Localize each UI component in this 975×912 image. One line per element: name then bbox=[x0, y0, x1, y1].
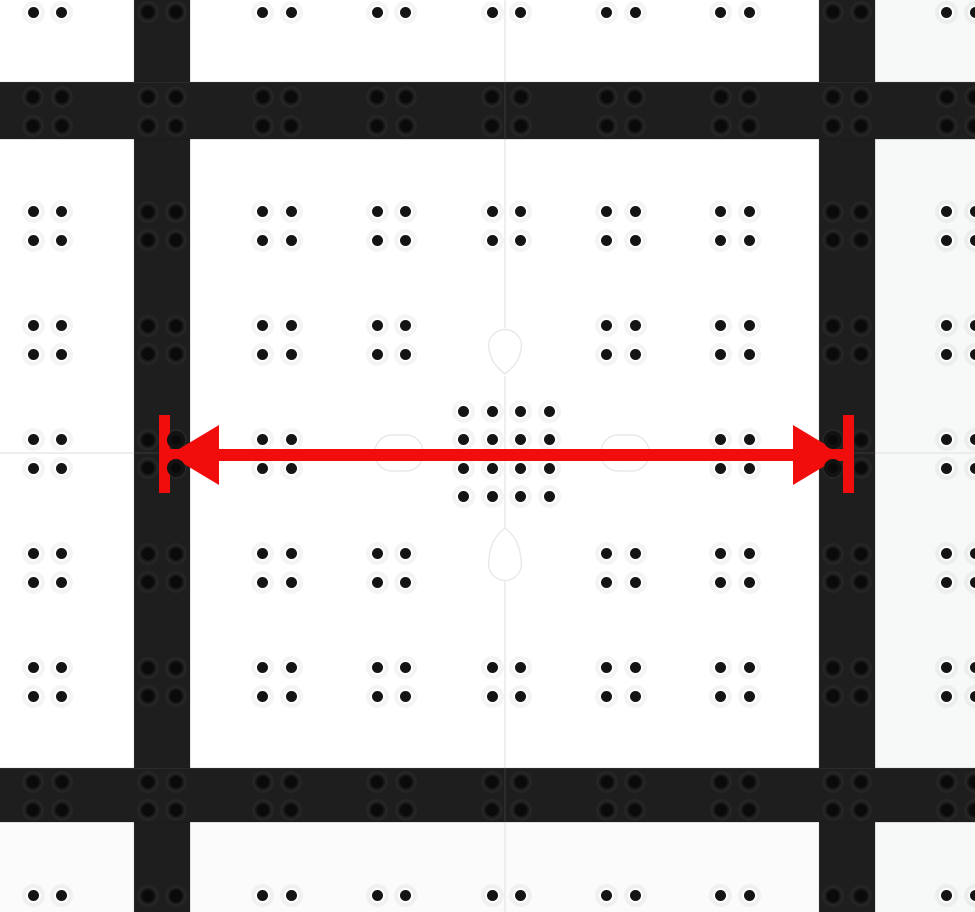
hole-dot bbox=[56, 463, 67, 474]
hole-dot bbox=[372, 320, 383, 331]
band-hole-dot bbox=[170, 206, 182, 218]
band-hole-dot bbox=[601, 120, 613, 132]
band-hole-dot bbox=[941, 91, 953, 103]
hole-dot bbox=[372, 235, 383, 246]
band-hole-dot bbox=[371, 776, 383, 788]
band-hole-dot bbox=[170, 548, 182, 560]
band-hole-dot bbox=[142, 234, 154, 246]
hole-dot bbox=[630, 577, 641, 588]
band-hole-dot bbox=[715, 91, 727, 103]
seam-over-band bbox=[504, 768, 506, 822]
band-hole-dot bbox=[400, 776, 412, 788]
band-hole-dot bbox=[142, 6, 154, 18]
band-hole-dot bbox=[170, 662, 182, 674]
band-hole-dot bbox=[142, 348, 154, 360]
hole-dot bbox=[487, 206, 498, 217]
hole-dot bbox=[941, 691, 952, 702]
hole-dot bbox=[744, 662, 755, 673]
measure-tick-left bbox=[159, 415, 170, 493]
hole-dot bbox=[372, 662, 383, 673]
seam-over-band bbox=[504, 82, 506, 139]
hole-dot bbox=[487, 434, 498, 445]
hole-dot bbox=[372, 890, 383, 901]
hole-dot bbox=[257, 463, 268, 474]
band-hole-dot bbox=[142, 662, 154, 674]
band-hole-dot bbox=[827, 348, 839, 360]
hole-dot bbox=[28, 662, 39, 673]
hole-dot bbox=[630, 691, 641, 702]
hole-dot bbox=[458, 463, 469, 474]
hole-dot bbox=[286, 548, 297, 559]
band-hole-dot bbox=[170, 320, 182, 332]
hole-dot bbox=[970, 7, 975, 18]
hole-dot bbox=[744, 548, 755, 559]
band-hole-dot bbox=[743, 776, 755, 788]
band-hole-dot bbox=[941, 776, 953, 788]
hole-dot bbox=[56, 691, 67, 702]
hole-dot bbox=[372, 691, 383, 702]
band-hole-dot bbox=[827, 576, 839, 588]
band-hole-dot bbox=[285, 776, 297, 788]
hole-dot bbox=[544, 434, 555, 445]
hole-dot bbox=[28, 7, 39, 18]
hole-dot bbox=[286, 206, 297, 217]
hole-dot bbox=[630, 662, 641, 673]
band-hole-dot bbox=[715, 120, 727, 132]
band-hole-dot bbox=[170, 890, 182, 902]
band-hole-dot bbox=[486, 120, 498, 132]
hole-dot bbox=[372, 7, 383, 18]
band-hole-dot bbox=[941, 120, 953, 132]
hole-dot bbox=[601, 7, 612, 18]
band-hole-dot bbox=[855, 320, 867, 332]
hole-dot bbox=[715, 349, 726, 360]
band-hole-dot bbox=[855, 548, 867, 560]
hole-dot bbox=[601, 691, 612, 702]
hole-dot bbox=[56, 349, 67, 360]
hole-dot bbox=[257, 349, 268, 360]
band-hole-dot bbox=[56, 91, 68, 103]
hole-dot bbox=[400, 691, 411, 702]
measure-arrow-shaft bbox=[169, 449, 843, 461]
hole-dot bbox=[630, 235, 641, 246]
band-hole-dot bbox=[170, 776, 182, 788]
hole-dot bbox=[715, 577, 726, 588]
band-hole-dot bbox=[56, 804, 68, 816]
hole-dot bbox=[941, 349, 952, 360]
hole-dot bbox=[744, 349, 755, 360]
hole-dot bbox=[941, 463, 952, 474]
hole-dot bbox=[601, 577, 612, 588]
hole-dot bbox=[715, 691, 726, 702]
band-hole-dot bbox=[827, 320, 839, 332]
hole-dot bbox=[257, 235, 268, 246]
band-hole-dot bbox=[142, 320, 154, 332]
hole-dot bbox=[286, 577, 297, 588]
hole-dot bbox=[630, 548, 641, 559]
band-hole-dot bbox=[855, 662, 867, 674]
hole-dot bbox=[715, 463, 726, 474]
band-hole-dot bbox=[715, 804, 727, 816]
hole-dot bbox=[286, 7, 297, 18]
hole-dot bbox=[630, 206, 641, 217]
hole-dot bbox=[372, 577, 383, 588]
hole-dot bbox=[715, 235, 726, 246]
hole-dot bbox=[630, 7, 641, 18]
hole-dot bbox=[630, 890, 641, 901]
hole-dot bbox=[744, 577, 755, 588]
band-hole-dot bbox=[27, 120, 39, 132]
hole-dot bbox=[56, 577, 67, 588]
hole-dot bbox=[715, 7, 726, 18]
hole-dot bbox=[744, 235, 755, 246]
band-hole-dot bbox=[827, 662, 839, 674]
band-hole-dot bbox=[515, 91, 527, 103]
band-hole-dot bbox=[601, 91, 613, 103]
band-hole-dot bbox=[855, 890, 867, 902]
band-hole-dot bbox=[257, 91, 269, 103]
band-hole-dot bbox=[142, 804, 154, 816]
band-hole-dot bbox=[142, 890, 154, 902]
hole-dot bbox=[970, 235, 975, 246]
hole-dot bbox=[515, 406, 526, 417]
hole-dot bbox=[970, 577, 975, 588]
hole-dot bbox=[56, 235, 67, 246]
band-hole-dot bbox=[515, 120, 527, 132]
hole-dot bbox=[744, 890, 755, 901]
hole-dot bbox=[487, 890, 498, 901]
band-hole-dot bbox=[400, 804, 412, 816]
band-hole-dot bbox=[827, 548, 839, 560]
hole-dot bbox=[970, 691, 975, 702]
band-hole-dot bbox=[285, 120, 297, 132]
band-hole-dot bbox=[170, 120, 182, 132]
hole-dot bbox=[372, 349, 383, 360]
band-hole-dot bbox=[827, 776, 839, 788]
hole-dot bbox=[515, 463, 526, 474]
hole-dot bbox=[28, 349, 39, 360]
hole-dot bbox=[601, 235, 612, 246]
hole-dot bbox=[28, 463, 39, 474]
band-hole-dot bbox=[629, 120, 641, 132]
band-hole-dot bbox=[56, 120, 68, 132]
hole-dot bbox=[28, 434, 39, 445]
hole-dot bbox=[286, 890, 297, 901]
band-hole-dot bbox=[142, 434, 154, 446]
band-hole-dot bbox=[969, 776, 975, 788]
band-hole-dot bbox=[142, 91, 154, 103]
band-hole-dot bbox=[27, 776, 39, 788]
band-hole-dot bbox=[969, 120, 975, 132]
band-hole-dot bbox=[400, 91, 412, 103]
hole-dot bbox=[941, 235, 952, 246]
hole-dot bbox=[286, 349, 297, 360]
hole-dot bbox=[400, 7, 411, 18]
hole-dot bbox=[400, 349, 411, 360]
hole-dot bbox=[286, 691, 297, 702]
hole-dot bbox=[372, 548, 383, 559]
hole-dot bbox=[257, 7, 268, 18]
mat-grid-scene bbox=[0, 0, 975, 912]
hole-dot bbox=[941, 577, 952, 588]
band-hole-dot bbox=[142, 576, 154, 588]
hole-dot bbox=[941, 7, 952, 18]
band-hole-dot bbox=[827, 890, 839, 902]
band-hole-dot bbox=[855, 434, 867, 446]
band-hole-dot bbox=[371, 120, 383, 132]
hole-dot bbox=[28, 890, 39, 901]
hole-dot bbox=[257, 577, 268, 588]
hole-dot bbox=[286, 320, 297, 331]
band-hole-dot bbox=[855, 776, 867, 788]
band-hole-dot bbox=[257, 776, 269, 788]
hole-dot bbox=[487, 491, 498, 502]
hole-dot bbox=[257, 691, 268, 702]
hole-dot bbox=[28, 548, 39, 559]
band-hole-dot bbox=[715, 776, 727, 788]
hole-dot bbox=[630, 320, 641, 331]
band-hole-dot bbox=[142, 206, 154, 218]
hole-dot bbox=[487, 662, 498, 673]
hole-dot bbox=[744, 434, 755, 445]
hole-dot bbox=[744, 206, 755, 217]
band-hole-dot bbox=[743, 120, 755, 132]
hole-dot bbox=[744, 320, 755, 331]
band-hole-dot bbox=[827, 120, 839, 132]
band-hole-dot bbox=[257, 804, 269, 816]
hole-dot bbox=[544, 491, 555, 502]
hole-dot bbox=[286, 662, 297, 673]
hole-dot bbox=[28, 691, 39, 702]
band-hole-dot bbox=[827, 804, 839, 816]
hole-dot bbox=[28, 206, 39, 217]
band-hole-dot bbox=[515, 776, 527, 788]
band-hole-dot bbox=[855, 120, 867, 132]
hole-dot bbox=[372, 206, 383, 217]
band-hole-dot bbox=[941, 804, 953, 816]
band-hole-dot bbox=[827, 234, 839, 246]
hole-dot bbox=[515, 7, 526, 18]
hole-dot bbox=[970, 463, 975, 474]
hole-dot bbox=[28, 235, 39, 246]
band-hole-dot bbox=[142, 690, 154, 702]
hole-dot bbox=[487, 7, 498, 18]
hole-dot bbox=[515, 691, 526, 702]
band-hole-dot bbox=[855, 206, 867, 218]
band-hole-dot bbox=[827, 6, 839, 18]
band-hole-dot bbox=[827, 206, 839, 218]
hole-dot bbox=[515, 235, 526, 246]
hole-dot bbox=[544, 406, 555, 417]
hole-dot bbox=[630, 349, 641, 360]
band-hole-dot bbox=[629, 776, 641, 788]
hole-dot bbox=[601, 349, 612, 360]
hole-dot bbox=[487, 463, 498, 474]
measure-tick-right bbox=[843, 415, 854, 493]
band-hole-dot bbox=[142, 548, 154, 560]
hole-rim-on-arrow bbox=[824, 459, 842, 477]
band-hole-dot bbox=[400, 120, 412, 132]
band-hole-dot bbox=[515, 804, 527, 816]
band-hole-dot bbox=[486, 776, 498, 788]
hole-dot bbox=[970, 349, 975, 360]
hole-dot bbox=[544, 463, 555, 474]
band-hole-dot bbox=[142, 120, 154, 132]
hole-dot bbox=[744, 691, 755, 702]
band-hole-dot bbox=[142, 776, 154, 788]
hole-dot bbox=[28, 577, 39, 588]
band-hole-dot bbox=[827, 91, 839, 103]
hole-dot bbox=[286, 235, 297, 246]
band-hole-dot bbox=[969, 91, 975, 103]
hole-dot bbox=[487, 691, 498, 702]
band-hole-dot bbox=[257, 120, 269, 132]
hole-dot bbox=[286, 434, 297, 445]
band-hole-dot bbox=[56, 776, 68, 788]
band-hole-dot bbox=[601, 804, 613, 816]
hole-rim-on-arrow bbox=[824, 431, 842, 449]
hole-dot bbox=[487, 406, 498, 417]
hole-dot bbox=[744, 463, 755, 474]
band-hole-dot bbox=[601, 776, 613, 788]
hole-dot bbox=[28, 320, 39, 331]
hole-rim-on-arrow bbox=[167, 431, 185, 449]
band-hole-dot bbox=[969, 804, 975, 816]
hole-dot bbox=[400, 577, 411, 588]
band-hole-dot bbox=[827, 690, 839, 702]
band-hole-dot bbox=[142, 462, 154, 474]
hole-dot bbox=[56, 7, 67, 18]
hole-dot bbox=[487, 235, 498, 246]
hole-dot bbox=[286, 463, 297, 474]
hole-dot bbox=[458, 406, 469, 417]
hole-dot bbox=[744, 7, 755, 18]
hole-dot bbox=[400, 235, 411, 246]
